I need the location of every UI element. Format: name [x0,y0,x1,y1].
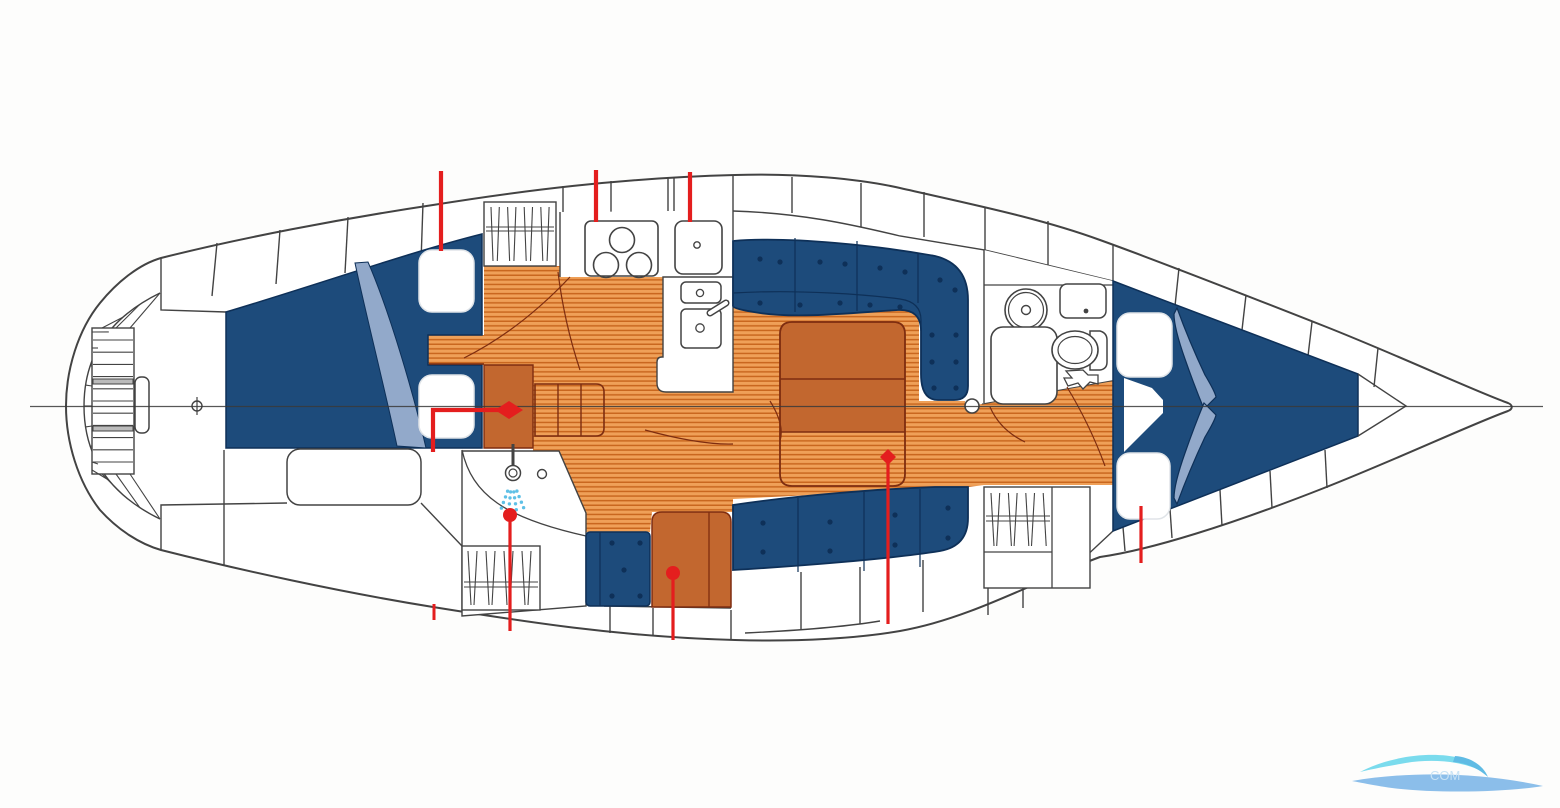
svg-text:COM: COM [1430,768,1460,783]
